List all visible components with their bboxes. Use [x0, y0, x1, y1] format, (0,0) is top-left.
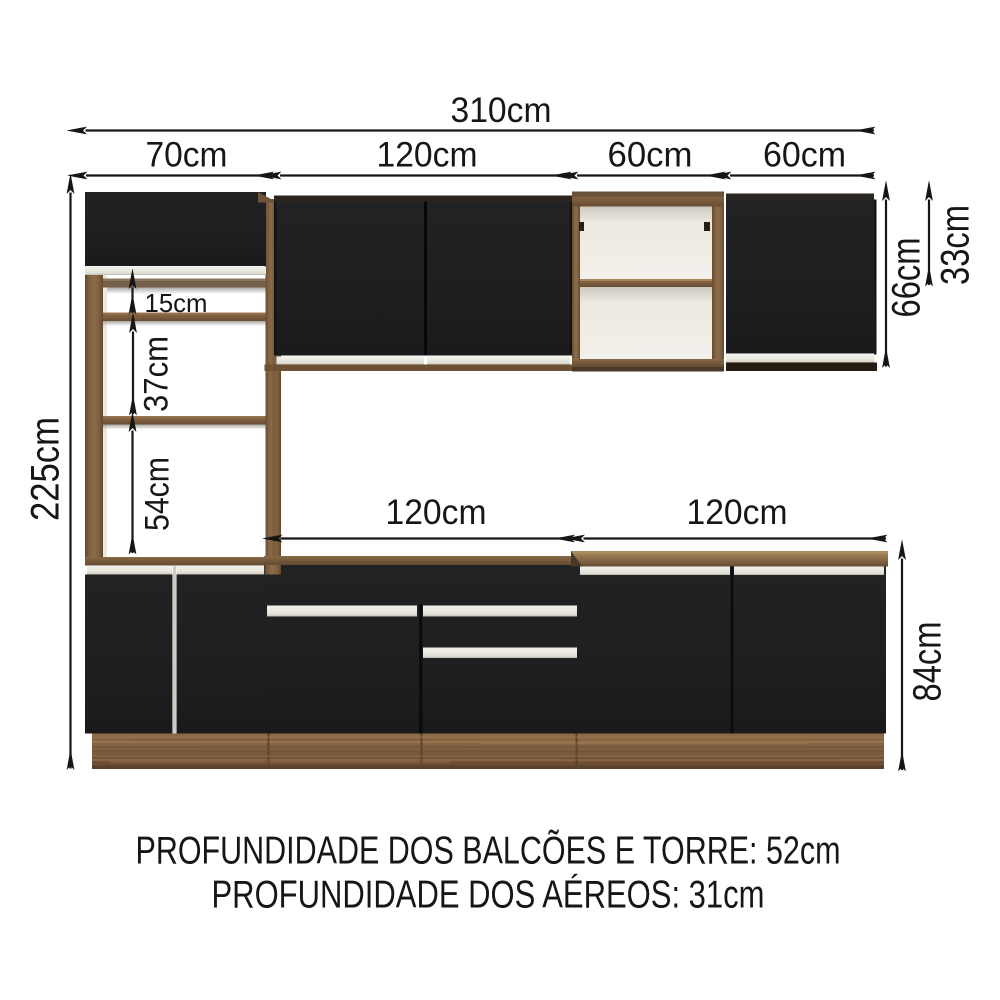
svg-text:225cm: 225cm: [24, 417, 68, 521]
svg-text:15cm: 15cm: [145, 288, 208, 318]
svg-text:37cm: 37cm: [138, 336, 176, 412]
svg-text:120cm: 120cm: [377, 135, 478, 174]
svg-text:84cm: 84cm: [906, 622, 950, 702]
svg-text:66cm: 66cm: [885, 238, 929, 318]
svg-text:60cm: 60cm: [608, 135, 693, 174]
svg-text:120cm: 120cm: [386, 493, 487, 532]
svg-text:PROFUNDIDADE DOS AÉREOS: 31cm: PROFUNDIDADE DOS AÉREOS: 31cm: [212, 874, 765, 917]
svg-text:PROFUNDIDADE DOS BALCÕES E TOR: PROFUNDIDADE DOS BALCÕES E TORRE: 52cm: [136, 829, 841, 873]
svg-text:120cm: 120cm: [687, 493, 788, 532]
svg-text:54cm: 54cm: [139, 457, 177, 531]
svg-text:33cm: 33cm: [934, 205, 978, 285]
svg-text:70cm: 70cm: [146, 135, 228, 174]
svg-text:60cm: 60cm: [763, 135, 846, 174]
svg-text:310cm: 310cm: [451, 90, 552, 130]
